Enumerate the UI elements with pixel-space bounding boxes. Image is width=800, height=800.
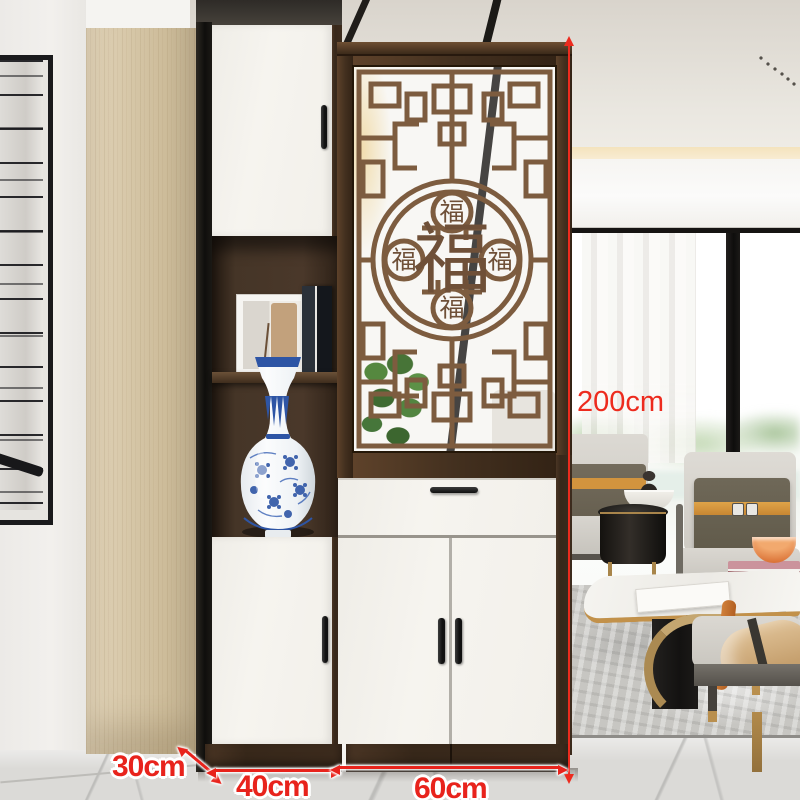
- upper-cabinet-door: [212, 25, 332, 236]
- window-header: [560, 159, 800, 228]
- base-doors-gap: [449, 538, 452, 744]
- ceiling-spotlights: [755, 50, 800, 90]
- height-arrow: [568, 46, 570, 774]
- bench-leg: [708, 686, 717, 722]
- fu-character-left: 福: [391, 246, 416, 275]
- open-shelf-unit: [212, 236, 342, 537]
- upper-door-handle: [321, 105, 327, 149]
- bench-base: [694, 664, 800, 686]
- bench-front-leg: [752, 712, 762, 772]
- base-door-handle-left: [438, 618, 445, 664]
- pillow-buckle: [732, 503, 744, 516]
- fu-character-right: 福: [487, 246, 512, 275]
- armchair-left-pillow-band: [564, 478, 646, 489]
- bench: [636, 600, 800, 800]
- height-label: 200cm: [577, 388, 664, 417]
- wood-accent-panel: [86, 28, 198, 754]
- width-right-label: 60cm: [414, 774, 487, 800]
- wall-artwork: [0, 55, 53, 525]
- artwork-texture: [0, 60, 43, 510]
- drawer-handle: [430, 487, 478, 493]
- left-plinth: [205, 744, 342, 772]
- lower-door-handle: [322, 616, 328, 663]
- pillow-buckle: [746, 503, 758, 516]
- base-door-handle-right: [455, 618, 462, 664]
- lower-cabinet-door: [212, 537, 332, 744]
- ceiling-shadow-left: [196, 0, 342, 28]
- base-doors: [338, 538, 558, 744]
- panel-gap-shadow: [196, 22, 212, 772]
- fruit-bowl: [752, 537, 796, 563]
- porcelain-vase: [228, 354, 328, 540]
- screen-crown: [337, 42, 572, 54]
- lattice-screen: 福 福 福 福 福: [337, 42, 572, 478]
- fu-character-bottom: 福: [439, 294, 464, 323]
- fu-character-top: 福: [439, 198, 464, 227]
- fu-character-center: 福: [413, 215, 491, 305]
- cove-light: [560, 147, 800, 159]
- width-left-label: 40cm: [236, 772, 309, 800]
- depth-label: 30cm: [112, 752, 185, 782]
- width-right-arrow: [340, 766, 558, 769]
- product-photo: 福 福 福 福 福 200cm 30cm 40cm 60cm: [0, 0, 800, 800]
